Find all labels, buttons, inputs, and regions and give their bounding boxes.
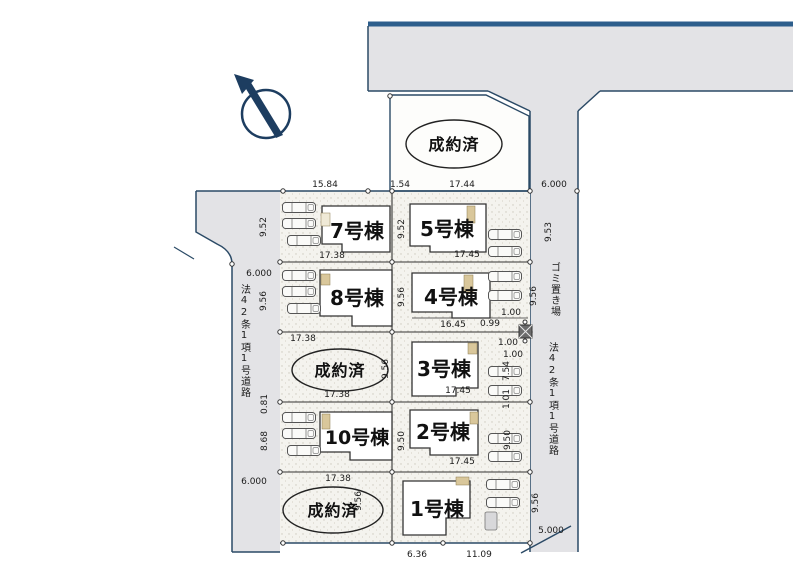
lot-label-1: 1号棟: [410, 497, 465, 521]
dim: 17.45: [454, 250, 480, 260]
car-icon: [283, 429, 316, 439]
dim: 7.54: [502, 361, 512, 381]
dim: 9.50: [503, 430, 513, 450]
sold-label-mid: 成約済: [314, 361, 365, 380]
dim: 1.54: [390, 180, 410, 190]
site-plan-drawing: 成約済 成約済 成約済 7号棟 5号棟 8号棟 4号棟 3号棟 10号棟 2号棟…: [0, 0, 800, 577]
right-road: [530, 95, 578, 552]
car-icon: [288, 236, 321, 246]
garbage-label: ゴミ置き場: [548, 262, 560, 317]
dim: 1.00: [503, 350, 523, 360]
dim: 9.56: [354, 491, 364, 511]
dim: 17.44: [449, 180, 475, 190]
car-icon: [489, 230, 522, 240]
dim: 0.81: [260, 394, 270, 414]
dim: 6.36: [407, 550, 427, 560]
dim: 6.000: [241, 477, 267, 487]
garbage-station-marker: [519, 325, 532, 338]
car-icon: [288, 446, 321, 456]
dim: 9.53: [544, 222, 554, 242]
car-icon: [283, 203, 316, 213]
sold-label-top: 成約済: [428, 135, 479, 154]
dim: 6.000: [541, 180, 567, 190]
dim: 0.99: [480, 319, 500, 329]
dim: 9.56: [397, 287, 407, 307]
dim: 9.50: [397, 431, 407, 451]
dim: 9.52: [397, 219, 407, 239]
lot-label-8: 8号棟: [330, 286, 385, 310]
dim: 11.09: [466, 550, 492, 560]
dim: 5.000: [538, 526, 564, 536]
sold-label-bottom: 成約済: [307, 501, 358, 520]
car-icon: [489, 452, 522, 462]
dim: 9.52: [259, 217, 269, 237]
car-icon: [283, 219, 316, 229]
dim: 6.000: [246, 269, 272, 279]
dim: 17.38: [319, 251, 345, 261]
dim: 8.68: [260, 431, 270, 451]
dim: 9.56: [259, 291, 269, 311]
lot-label-5: 5号棟: [420, 217, 475, 241]
car-icon: [487, 498, 520, 508]
car-icon: [489, 272, 522, 282]
lot-label-4: 4号棟: [424, 285, 479, 309]
road-label-left: 法42条1項1号道路: [238, 284, 250, 398]
lot-label-2: 2号棟: [416, 420, 471, 444]
car-icon: [487, 480, 520, 490]
car-icon: [283, 287, 316, 297]
dim: 1.00: [498, 338, 518, 348]
dim: 15.84: [312, 180, 338, 190]
dim: 17.45: [449, 457, 475, 467]
north-arrow-icon: [234, 74, 290, 138]
dim: 17.45: [445, 386, 471, 396]
dim: 17.38: [325, 474, 351, 484]
site-plan: 成約済 成約済 成約済 7号棟 5号棟 8号棟 4号棟 3号棟 10号棟 2号棟…: [0, 0, 800, 577]
dim: 17.38: [324, 390, 350, 400]
lot-label-7: 7号棟: [330, 219, 385, 243]
road-label-right: 法42条1項1号道路: [546, 342, 558, 456]
dim: 9.56: [531, 493, 541, 513]
car-icon: [489, 247, 522, 257]
dim: 17.38: [290, 334, 316, 344]
lot-label-3: 3号棟: [417, 357, 472, 381]
dim: 9.56: [529, 286, 539, 306]
dim: 16.45: [440, 320, 466, 330]
car-icon: [283, 271, 316, 281]
car-icon: [283, 413, 316, 423]
car-icon: [489, 291, 522, 301]
dim: 9.56: [381, 359, 391, 379]
car-icon: [288, 304, 321, 314]
dim: 1.00: [501, 308, 521, 318]
lot-label-10: 10号棟: [325, 426, 390, 449]
dim: 1.01: [502, 389, 512, 409]
storage-box: [485, 512, 497, 530]
